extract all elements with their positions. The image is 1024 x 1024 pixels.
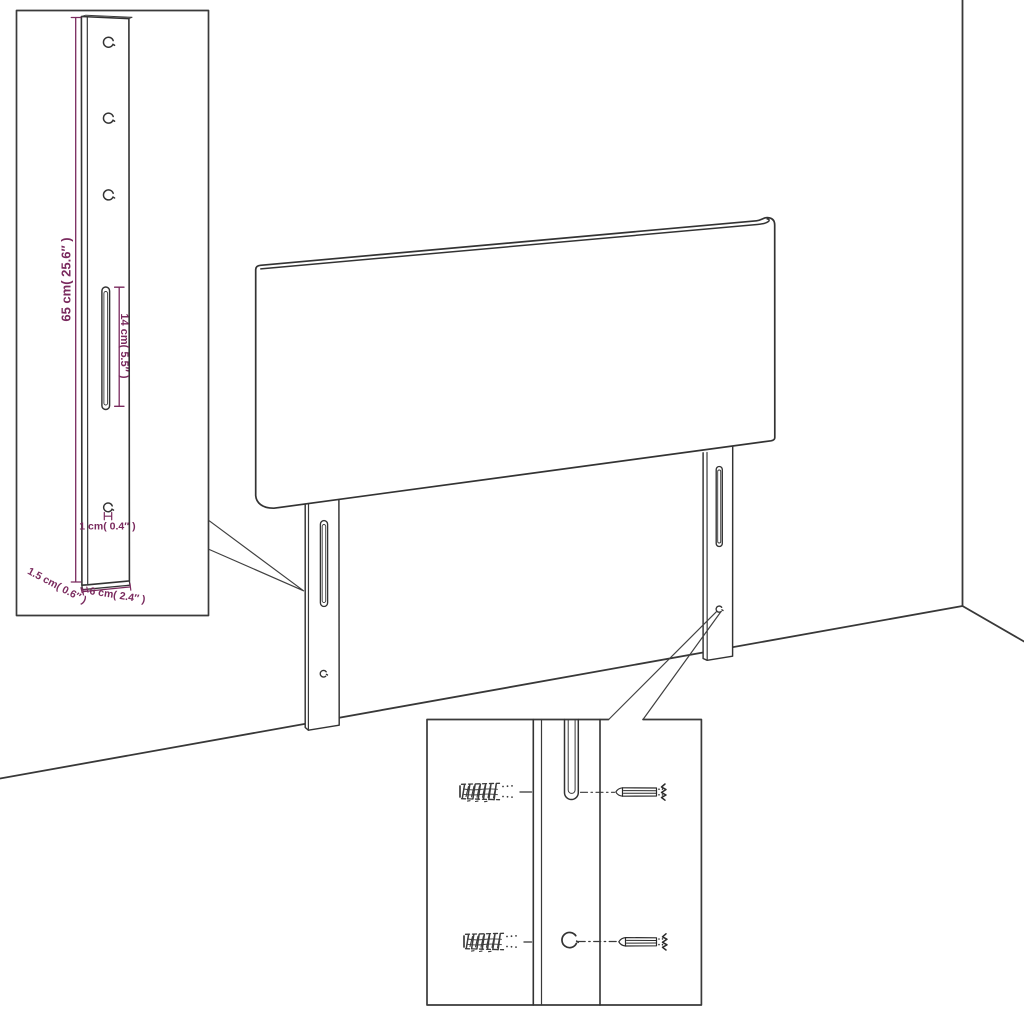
svg-text:1 cm( 0.4″ ): 1 cm( 0.4″ ) [79,521,135,533]
svg-text:65 cm( 25.6″ ): 65 cm( 25.6″ ) [59,237,74,321]
svg-text:14 cm( 5.5″ ): 14 cm( 5.5″ ) [118,313,130,379]
